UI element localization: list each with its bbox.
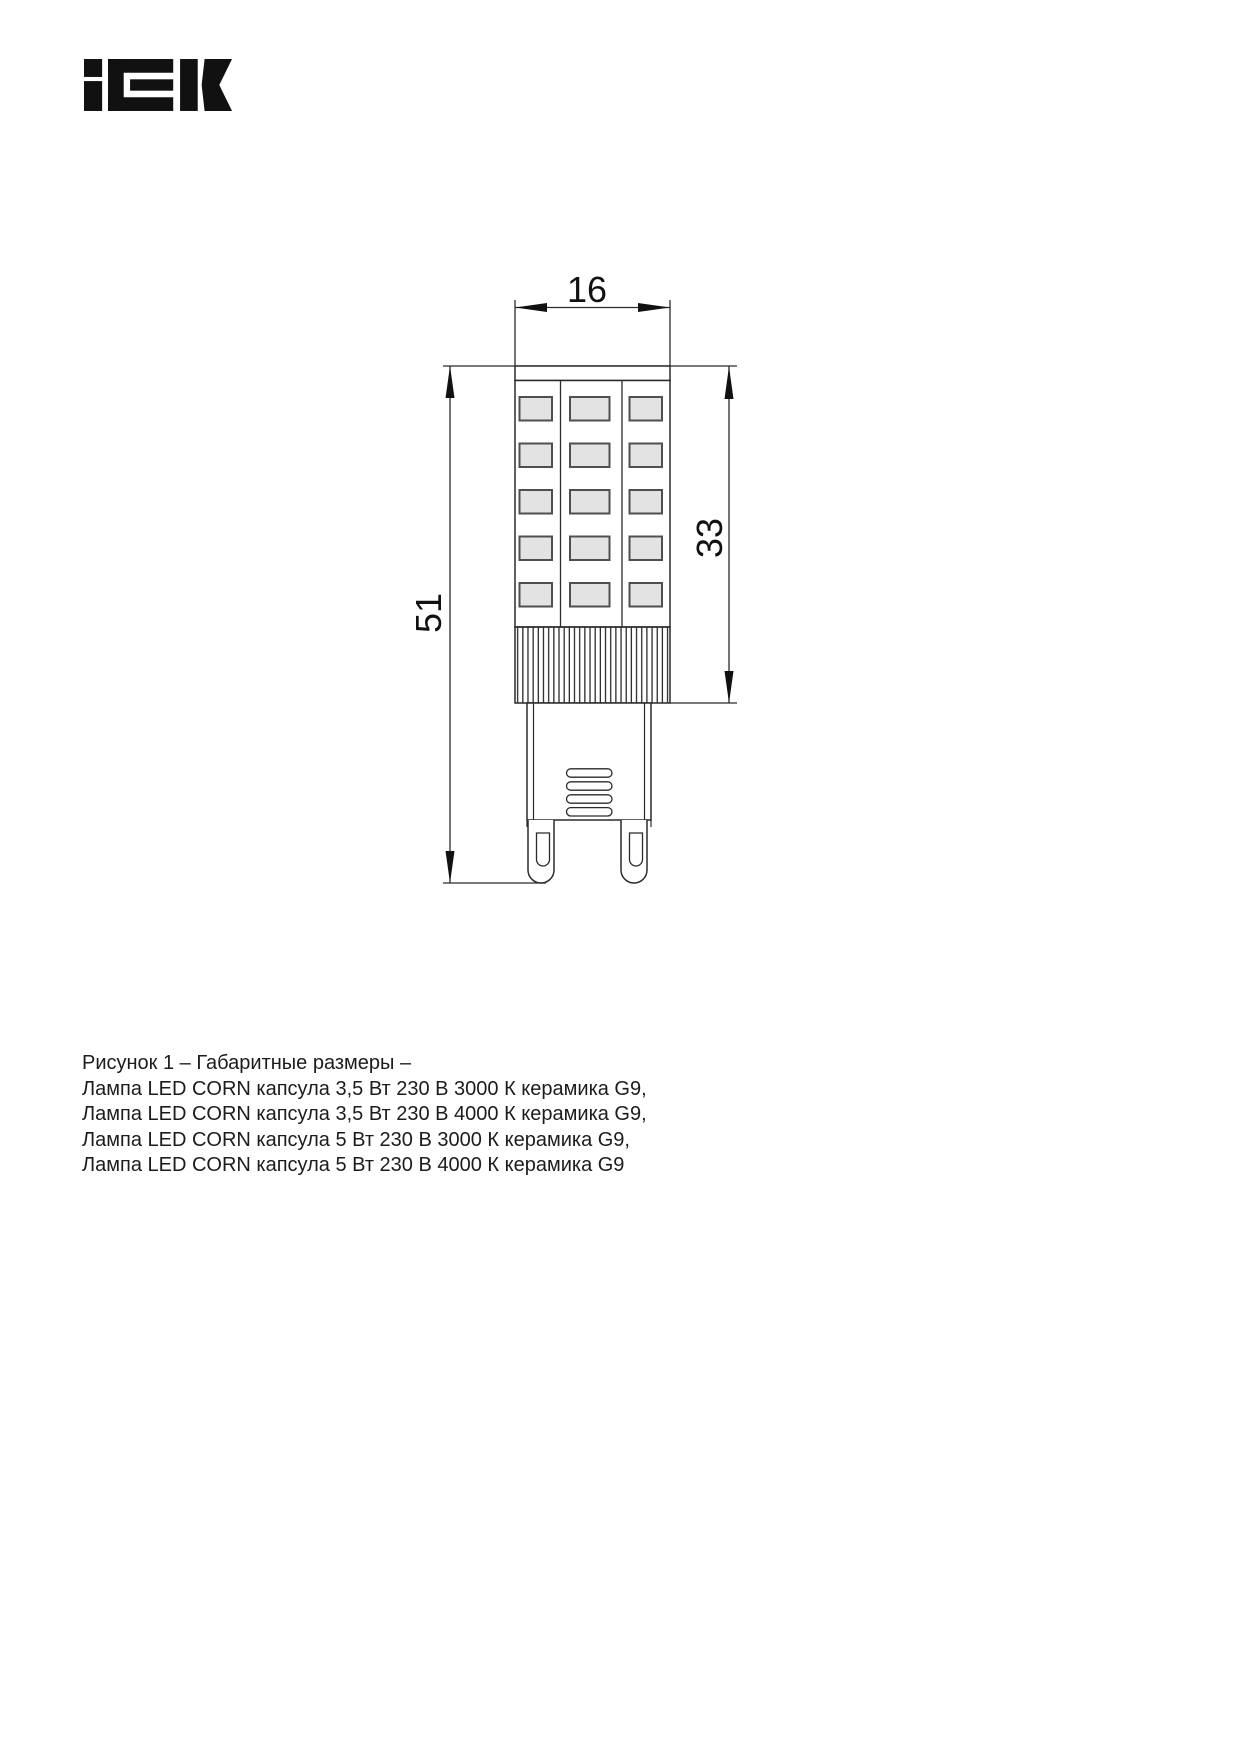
pin-right-slot [630, 833, 643, 866]
logo-i-dot [84, 59, 102, 77]
led-chip [630, 397, 663, 421]
vent-slot [567, 808, 613, 816]
vent-slot [567, 782, 613, 790]
lamp-top-band [515, 366, 670, 381]
document-page: 16 51 33 Рисунок 1 – Габаритные размеры … [0, 0, 1242, 1747]
logo-e-middle-bar [130, 79, 173, 90]
pin-left-slot [537, 833, 550, 866]
caption-line: Лампа LED CORN капсула 5 Вт 230 В 3000 К… [82, 1128, 647, 1154]
vent-slot [567, 795, 613, 803]
led-chip [630, 490, 663, 514]
logo-i-stem [84, 81, 102, 111]
logo-e-bottom-bar [108, 97, 173, 111]
led-chip [630, 444, 663, 468]
led-chip [520, 537, 553, 561]
arrow-up-icon [446, 366, 455, 398]
rib-section [515, 627, 670, 703]
led-chip [520, 490, 553, 514]
led-chip [570, 444, 610, 468]
dimension-drawing: 16 51 33 [0, 230, 1242, 930]
led-chip [630, 537, 663, 561]
led-chip [570, 397, 610, 421]
arrow-down-icon [446, 851, 455, 883]
vent-slot [567, 769, 613, 777]
led-chip [630, 583, 663, 607]
caption-line: Лампа LED CORN капсула 5 Вт 230 В 4000 К… [82, 1153, 647, 1179]
led-chip [520, 583, 553, 607]
arrow-down-icon [725, 671, 734, 703]
led-chip [570, 490, 610, 514]
led-chip [570, 537, 610, 561]
figure-caption: Рисунок 1 – Габаритные размеры – Лампа L… [82, 1051, 647, 1179]
logo-k-arms [202, 59, 232, 111]
arrow-right-icon [638, 303, 670, 312]
arrow-up-icon [725, 367, 734, 400]
caption-line: Лампа LED CORN капсула 3,5 Вт 230 В 3000… [82, 1077, 647, 1103]
dim-width-label: 16 [567, 269, 607, 310]
led-chip [570, 583, 610, 607]
dim-led-section-label: 33 [689, 518, 730, 558]
caption-line: Рисунок 1 – Габаритные размеры – [82, 1051, 647, 1077]
arrow-left-icon [515, 303, 547, 312]
logo-k-stem [180, 59, 198, 111]
dim-total-height-label: 51 [408, 593, 449, 633]
caption-line: Лампа LED CORN капсула 3,5 Вт 230 В 4000… [82, 1102, 647, 1128]
logo-e-top-bar [108, 59, 173, 73]
led-chip [520, 397, 553, 421]
iek-logo [84, 59, 234, 111]
led-chip [520, 444, 553, 468]
